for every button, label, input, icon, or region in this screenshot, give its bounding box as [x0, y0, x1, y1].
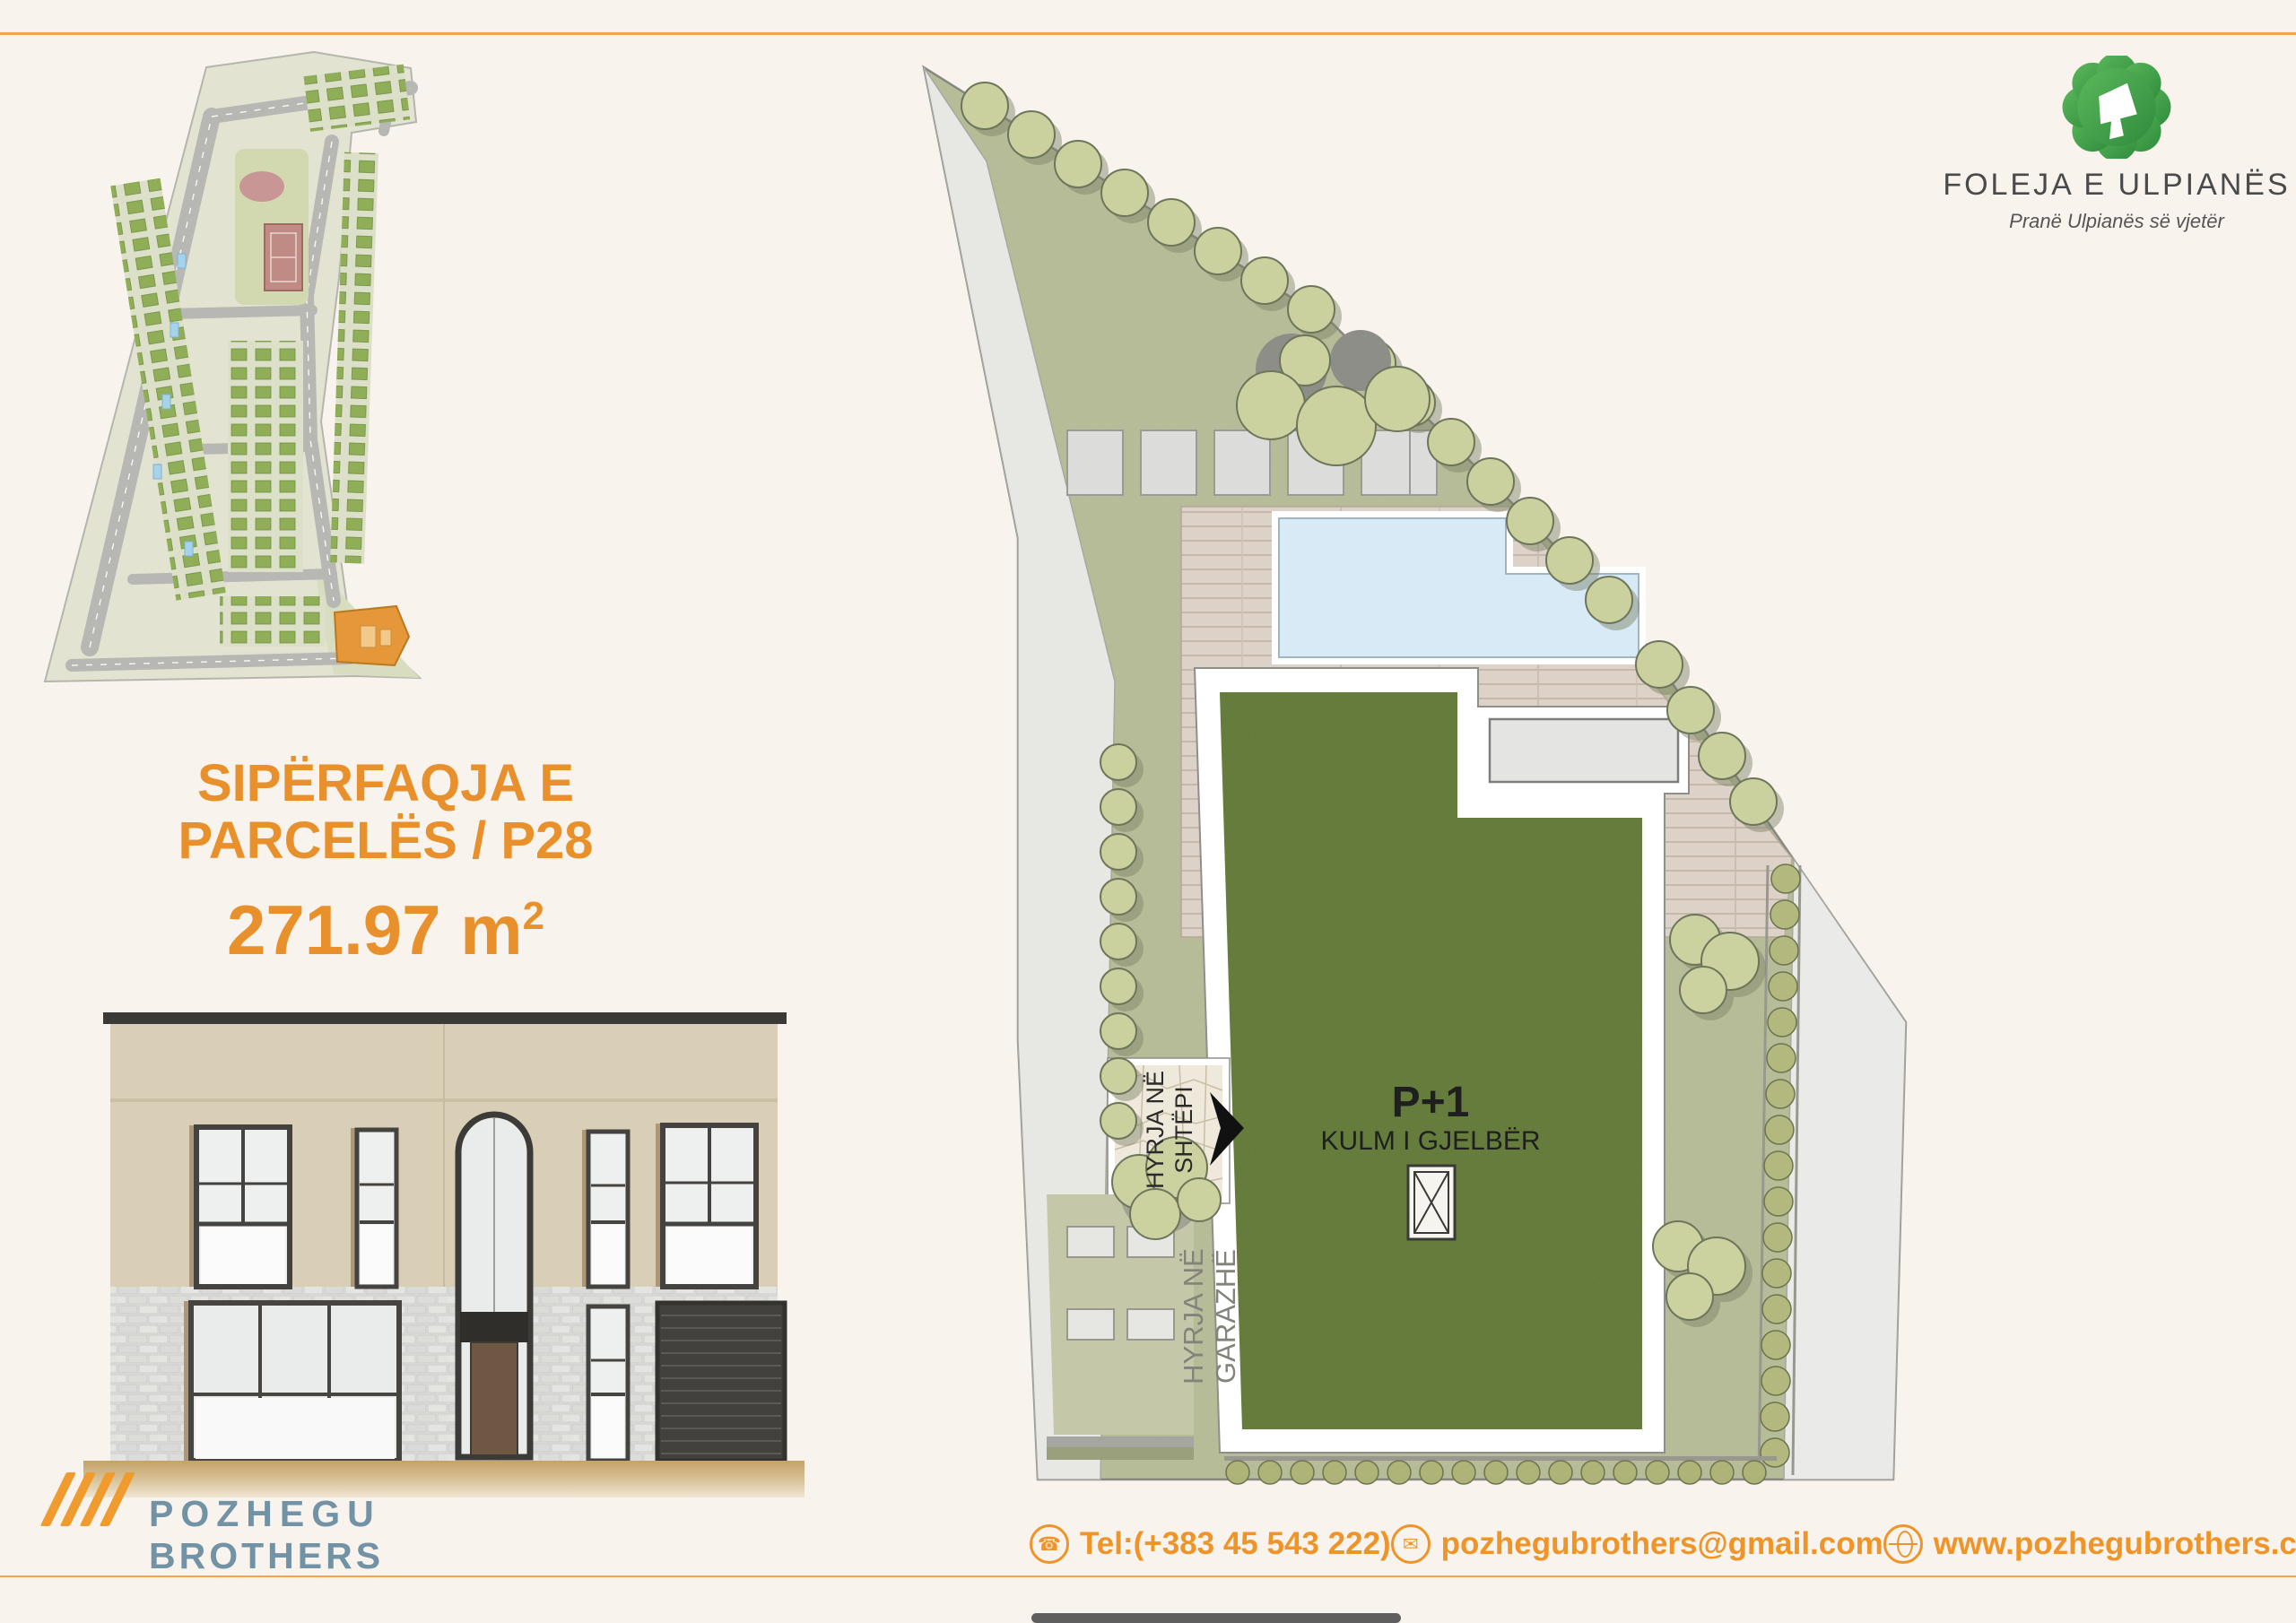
- scrollbar-thumb[interactable]: [1031, 1613, 1401, 1623]
- entry-door: [471, 1342, 517, 1455]
- clover-4-icon: [2049, 56, 2184, 159]
- site-park: [235, 149, 309, 305]
- hedge-row-bottom: [1226, 1461, 1766, 1484]
- contact-bar: ☎ Tel:(+383 45 543 222) ✉ pozhegubrother…: [1030, 1524, 2292, 1564]
- sliding-glass-door: [184, 1301, 399, 1461]
- stepping-stones: [1067, 430, 1437, 495]
- company-name-line1: POZHEGU: [149, 1496, 384, 1532]
- house-elevation: [76, 1009, 812, 1497]
- brand-block: FOLEJA E ULPIANËS Pranë Ulpianës së vjet…: [1928, 56, 2296, 233]
- area-superscript: 2: [523, 894, 544, 938]
- site-master-plan: [36, 45, 439, 690]
- company-logo: POZHEGU BROTHERS: [39, 1471, 384, 1575]
- parcel-area-block: SIPËRFAQJA E PARCELËS / P28 271.97 m2: [108, 755, 664, 971]
- brochure-page: SIPËRFAQJA E PARCELËS / P28 271.97 m2: [0, 0, 2296, 1623]
- terrace-slab: [1490, 719, 1678, 782]
- contact-website[interactable]: www.pozhegubrothers.com: [1883, 1524, 2296, 1564]
- roof-label-subtitle: KULM I GJELBËR: [1320, 1126, 1540, 1156]
- area-number: 271.97 m: [227, 890, 523, 969]
- contact-tel-text: Tel:(+383 45 543 222): [1080, 1526, 1391, 1562]
- stone-path-right: [1784, 859, 1906, 1480]
- entrance-house-label-line2: SHTËPI: [1170, 1086, 1197, 1174]
- parcel-title-line2: PARCELËS / P28: [108, 812, 664, 870]
- parcel-title-line1: SIPËRFAQJA E: [108, 755, 664, 812]
- contact-tel[interactable]: ☎ Tel:(+383 45 543 222): [1030, 1524, 1391, 1564]
- brand-tagline: Pranë Ulpianës së vjetër: [1928, 210, 2296, 233]
- contact-website-text: www.pozhegubrothers.com: [1934, 1526, 2296, 1562]
- globe-icon: [1883, 1524, 1923, 1564]
- top-rule: [0, 32, 2296, 35]
- roof-fascia: [103, 1012, 787, 1024]
- window-upper-right-narrow: [582, 1130, 628, 1287]
- window-upper-left: [189, 1125, 290, 1287]
- company-name-line2: BROTHERS: [149, 1538, 384, 1575]
- entrance-house-label-line1: HYRJA NË: [1142, 1071, 1169, 1189]
- parcel-plan: P+1 KULM I GJELBËR HYRJA NË SHTËPI HYRJA…: [883, 54, 2005, 1515]
- window-upper-right: [656, 1124, 756, 1287]
- window-lower-narrow: [588, 1306, 628, 1461]
- window-upper-left-narrow: [351, 1128, 396, 1287]
- four-slashes-icon: [39, 1471, 138, 1530]
- brand-name: FOLEJA E ULPIANËS: [1928, 168, 2296, 203]
- contact-email-text: pozhegubrothers@gmail.com: [1441, 1526, 1883, 1562]
- entrance-garage-label-line1: HYRJA NË: [1178, 1248, 1209, 1384]
- highlighted-parcel-p28: [335, 606, 409, 665]
- contact-email[interactable]: ✉ pozhegubrothers@gmail.com: [1391, 1524, 1883, 1564]
- arched-entry: [458, 1115, 530, 1457]
- hedge-line: [1224, 1456, 1777, 1461]
- roof-label-title: P+1: [1392, 1079, 1470, 1126]
- phone-icon: ☎: [1030, 1524, 1069, 1564]
- parcel-area-value: 271.97 m2: [108, 890, 664, 971]
- email-icon: ✉: [1391, 1524, 1431, 1564]
- skylight-symbol: [1408, 1166, 1455, 1239]
- garage-door: [657, 1303, 785, 1461]
- entrance-garage-label-line2: GARAZHË: [1210, 1249, 1241, 1384]
